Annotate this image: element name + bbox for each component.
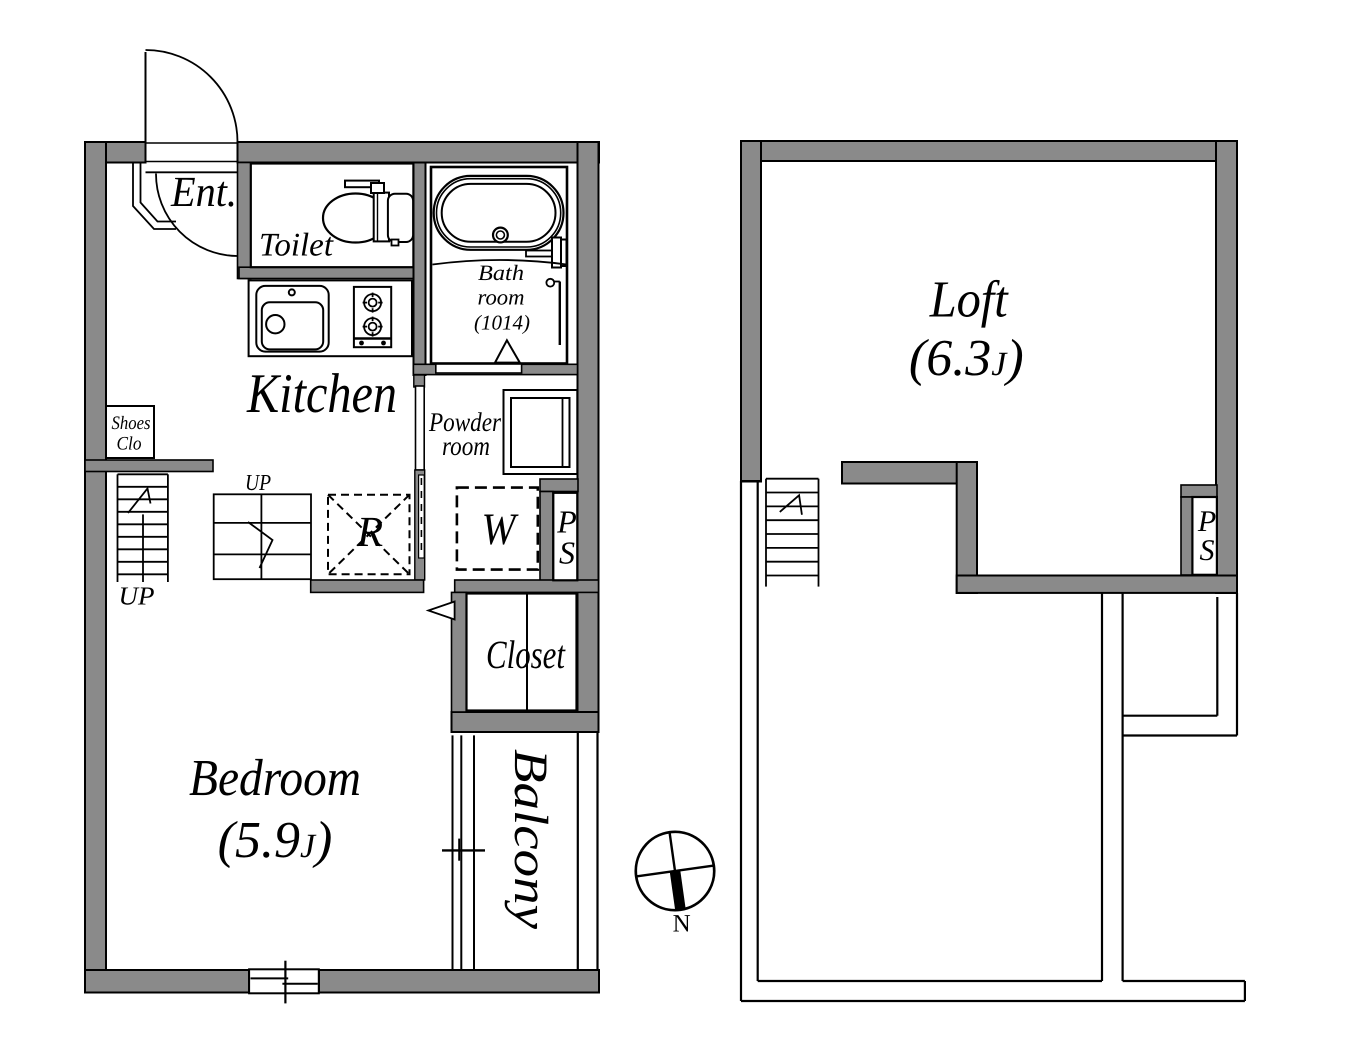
svg-text:Loft: Loft xyxy=(929,272,1009,329)
svg-text:(6.3J): (6.3J) xyxy=(909,330,1024,387)
svg-text:Toilet: Toilet xyxy=(259,228,334,264)
svg-text:room: room xyxy=(478,285,525,310)
svg-text:Closet: Closet xyxy=(486,632,566,677)
svg-text:Clo: Clo xyxy=(117,434,142,455)
svg-text:R: R xyxy=(356,509,383,556)
svg-text:S: S xyxy=(559,535,575,571)
svg-text:W: W xyxy=(482,504,519,554)
svg-text:Kitchen: Kitchen xyxy=(246,363,397,425)
svg-text:Balcony: Balcony xyxy=(504,749,557,930)
svg-text:Bedroom: Bedroom xyxy=(189,750,361,807)
svg-text:(1014): (1014) xyxy=(474,311,530,335)
svg-text:N: N xyxy=(673,911,691,938)
svg-text:Shoes: Shoes xyxy=(112,413,151,434)
svg-text:(5.9J): (5.9J) xyxy=(218,812,333,869)
svg-text:room: room xyxy=(442,431,490,461)
svg-text:Bath: Bath xyxy=(478,260,524,285)
svg-text:S: S xyxy=(1200,534,1215,567)
svg-text:UP: UP xyxy=(119,582,155,611)
svg-text:Ent.: Ent. xyxy=(170,169,237,216)
svg-text:UP: UP xyxy=(245,470,271,495)
